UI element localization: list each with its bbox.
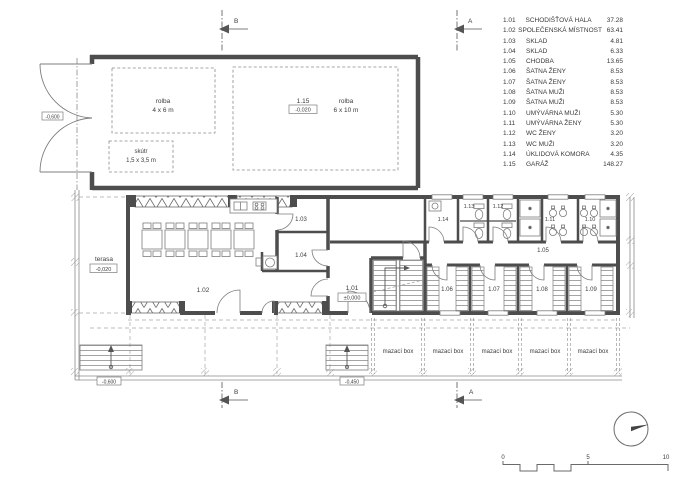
room-label-1-11: 1.11 xyxy=(545,217,555,223)
legend-row: 1.15GARÁŽ148.27 xyxy=(503,160,623,170)
legend-row: 1.06ŠATNA ŽENY8.53 xyxy=(503,67,623,77)
section-marker-b-bottom: B xyxy=(219,382,248,408)
svg-text:-0,020: -0,020 xyxy=(96,267,112,273)
rolba-small-label: rolba xyxy=(156,98,171,105)
room-label-1-04: 1.04 xyxy=(295,253,307,259)
scale-five: 5 xyxy=(586,455,590,461)
room-label-1-09: 1.09 xyxy=(585,287,597,293)
scale-bar: 0 5 10 xyxy=(501,455,670,471)
legend-row: 1.08ŠATNA MUŽI8.53 xyxy=(503,88,623,98)
garage-door-level-marker: -0,600 xyxy=(42,112,63,120)
room-label-1-12: 1.12 xyxy=(493,204,504,210)
legend-row: 1.09ŠATNA MUŽI8.53 xyxy=(503,98,623,108)
room-label-1-05: 1.05 xyxy=(537,248,549,254)
room-label-1-08: 1.08 xyxy=(536,287,548,293)
floor-plan-sheet: rolba 4 x 6 m skútr 1,5 x 3,5 m 1.15 -0,… xyxy=(0,0,700,498)
stairs-left-level-marker: -0,600 xyxy=(97,377,121,385)
svg-text:A: A xyxy=(468,18,473,25)
room-label-1-10: 1.10 xyxy=(585,217,596,223)
section-marker-b-top: B xyxy=(219,10,248,52)
rolba-small-dim: 4 x 6 m xyxy=(152,107,173,114)
north-compass xyxy=(614,412,649,446)
legend-row: 1.03SKLAD4.81 xyxy=(503,37,623,47)
terrain-front-level-marker: -0,450 xyxy=(340,377,364,385)
svg-text:B: B xyxy=(234,389,238,396)
greasing-box-label-3: mazací box xyxy=(482,349,513,355)
room-label-1-01: 1.01 xyxy=(346,285,359,292)
svg-text:±0,000: ±0,000 xyxy=(344,296,361,302)
legend-row: 1.01SCHODIŠŤOVÁ HALA37.28 xyxy=(503,16,623,26)
kitchenette xyxy=(230,199,277,213)
section-marker-a-top: A xyxy=(454,10,482,52)
greasing-box-label-1: mazací box xyxy=(383,349,414,355)
rolba-big-dim: 6 x 10 m xyxy=(334,107,359,114)
room-label-1-06: 1.06 xyxy=(441,287,453,293)
room-label-1-15: 1.15 xyxy=(297,98,310,105)
exterior-stairs-mid xyxy=(326,345,368,370)
rolba-big-label: rolba xyxy=(339,98,354,105)
svg-text:B: B xyxy=(234,18,238,25)
legend-row: 1.10UMÝVÁRNA MUŽI5.30 xyxy=(503,109,623,119)
room-label-1-07: 1.07 xyxy=(488,287,500,293)
svg-text:-0,020: -0,020 xyxy=(295,108,311,114)
room-label-1-02: 1.02 xyxy=(197,287,210,294)
svg-text:-0,600: -0,600 xyxy=(102,379,116,385)
garage-level-marker: -0,020 xyxy=(289,105,317,114)
skutr-dim: 1,5 x 3,5 m xyxy=(126,158,156,164)
greasing-box-label-2: mazací box xyxy=(433,349,464,355)
room-label-1-14: 1.14 xyxy=(438,217,449,223)
section-marker-a-bottom: A xyxy=(454,382,482,408)
legend-row: 1.14ÚKLIDOVÁ KOMORA4.35 xyxy=(503,150,623,160)
legend-row: 1.02SPOLEČENSKÁ MÍSTNOST63.41 xyxy=(503,26,623,36)
terasa-level-marker: -0,020 xyxy=(90,264,117,273)
terasa-label: terasa xyxy=(95,256,113,263)
legend-row: 1.13WC MUŽI3.20 xyxy=(503,140,623,150)
legend-row: 1.11UMÝVÁRNA ŽENY5.30 xyxy=(503,119,623,129)
room-label-1-13: 1.13 xyxy=(464,204,475,210)
scale-zero: 0 xyxy=(501,455,505,461)
exterior-stairs-left xyxy=(80,345,142,370)
greasing-box-label-4: mazací box xyxy=(530,349,561,355)
room-legend: 1.01SCHODIŠŤOVÁ HALA37.28 1.02SPOLEČENSK… xyxy=(503,16,623,170)
svg-text:-0,600: -0,600 xyxy=(45,114,59,120)
room-label-1-03: 1.03 xyxy=(295,217,307,223)
skutr-label: skútr xyxy=(134,149,147,155)
greasing-box-dividers xyxy=(372,318,620,374)
svg-text:-0,450: -0,450 xyxy=(345,379,359,385)
legend-row: 1.04SKLAD6.33 xyxy=(503,47,623,57)
staircase xyxy=(373,260,423,311)
garage-floor xyxy=(92,57,418,188)
cleaning-sink xyxy=(429,201,441,211)
legend-row: 1.05CHODBA13.65 xyxy=(503,57,623,67)
svg-text:A: A xyxy=(469,389,474,396)
greasing-box-label-5: mazací box xyxy=(578,349,609,355)
legend-row: 1.12WC ŽENY3.20 xyxy=(503,129,623,139)
legend-row: 1.07ŠATNA ŽENY8.53 xyxy=(503,78,623,88)
main-level-marker: ±0,000 xyxy=(338,293,366,302)
scale-ten: 10 xyxy=(663,455,670,461)
